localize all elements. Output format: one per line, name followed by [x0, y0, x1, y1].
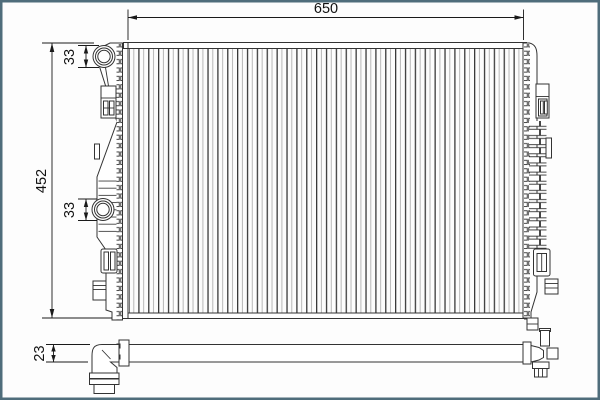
dim-label-650: 650 [314, 1, 338, 17]
right-tank-tab [546, 138, 552, 158]
right-fitting [545, 279, 558, 294]
arrow-left [128, 15, 137, 20]
core-bottom-header [128, 313, 523, 319]
side-right-fitting [523, 329, 558, 378]
right-bottom-stub [527, 318, 538, 330]
fitting-top-stub [541, 331, 550, 347]
front-view [92, 43, 558, 331]
fitting-ribbed-end [535, 369, 548, 378]
arrow-down [51, 355, 55, 362]
port-mid [92, 199, 114, 221]
left-tank-tab [95, 144, 100, 159]
core-top-header [124, 43, 527, 49]
dim-label-23: 23 [32, 345, 48, 361]
left-tank [92, 43, 123, 320]
radiator-technical-drawing: 650 452 33 33 23 [0, 0, 600, 400]
left-bracket-top [101, 86, 116, 118]
side-view [90, 329, 559, 394]
fitting-hose-port [547, 348, 558, 359]
dim-label-33-mid: 33 [62, 202, 78, 218]
port-top [93, 46, 115, 68]
dim-label-452: 452 [34, 169, 50, 193]
arrow-up [51, 345, 55, 352]
arrow-down [84, 213, 88, 221]
arrow-down [84, 60, 88, 68]
left-crimp-tabs [117, 44, 123, 320]
side-view-body [128, 345, 523, 363]
arrow-right [515, 15, 524, 20]
arrow-down [50, 309, 55, 318]
right-connector [536, 84, 549, 118]
arrow-up [84, 46, 88, 54]
left-bracket-bottom [101, 249, 117, 273]
arrow-up [50, 43, 55, 52]
left-fitting [93, 281, 106, 300]
right-tank [523, 43, 558, 330]
dimension-side-thickness: 23 [32, 345, 90, 363]
core-fins [129, 49, 522, 313]
dimension-overall-width: 650 [128, 1, 524, 40]
right-bracket [534, 249, 551, 276]
arrow-up [84, 199, 88, 207]
radiator-core [112, 43, 531, 319]
right-tank-ribs [529, 121, 547, 249]
dim-label-33-top: 33 [62, 49, 78, 65]
side-elbow-pipe [90, 345, 120, 394]
